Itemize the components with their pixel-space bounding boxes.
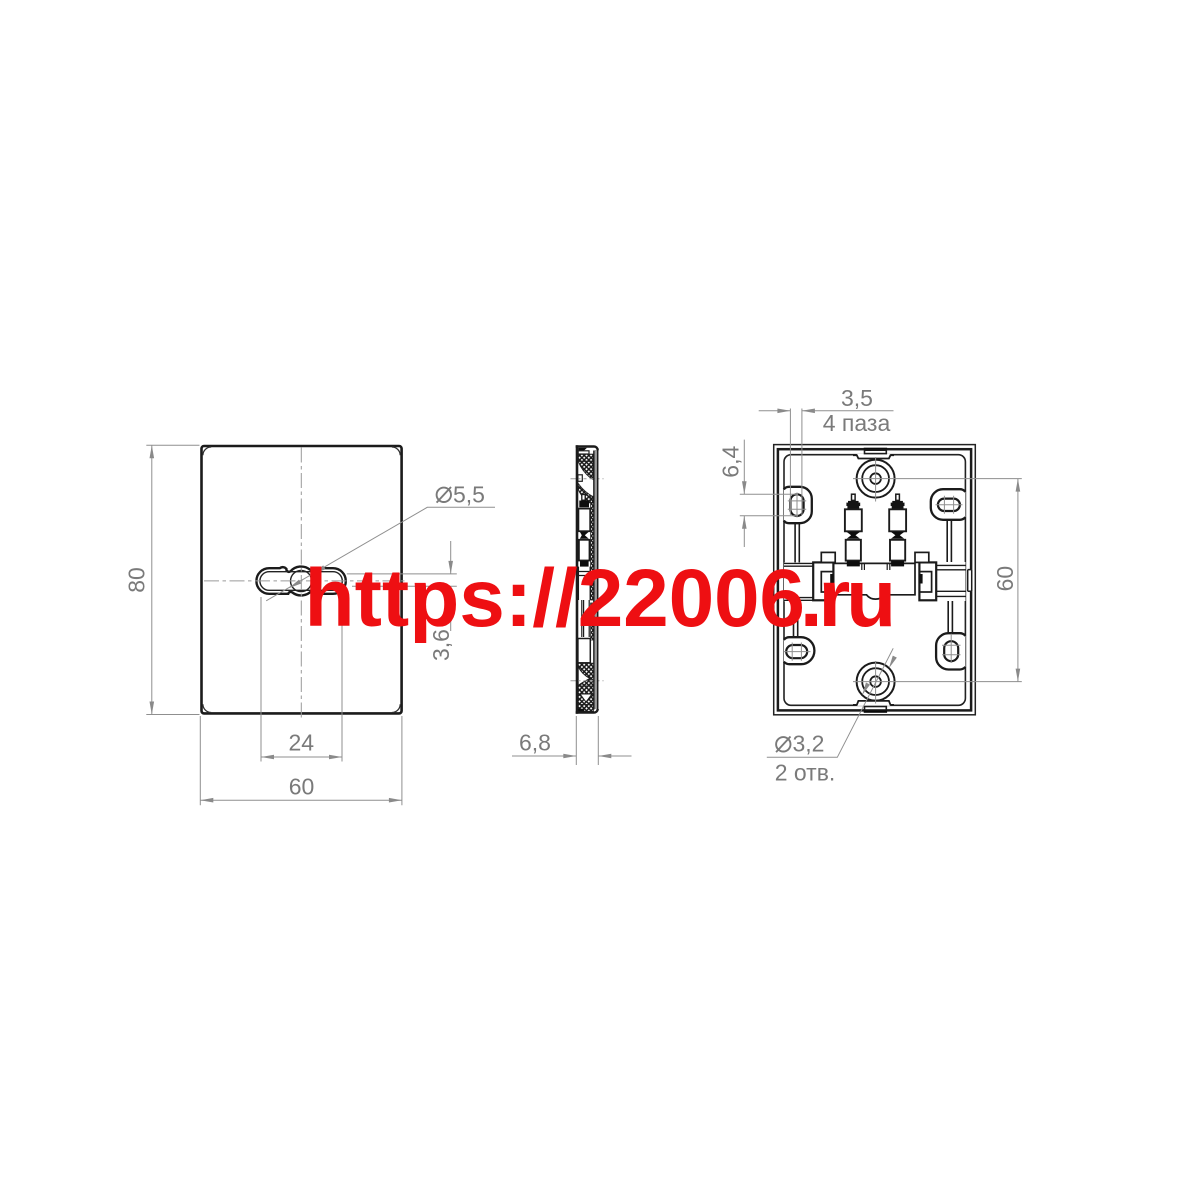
svg-text:60: 60 [992,566,1018,592]
svg-text:80: 80 [124,567,150,593]
svg-text:6,4: 6,4 [717,446,743,478]
svg-text:5,5: 5,5 [453,481,485,507]
svg-text:2 отв.: 2 отв. [775,760,836,786]
svg-text:4 паза: 4 паза [823,410,891,436]
svg-text:6,8: 6,8 [519,730,551,756]
svg-text:3,5: 3,5 [841,385,873,411]
svg-text:https://22006.ru: https://22006.ru [305,553,893,644]
svg-text:24: 24 [289,730,315,756]
svg-text:60: 60 [289,774,315,800]
svg-text:3,2: 3,2 [793,731,825,757]
